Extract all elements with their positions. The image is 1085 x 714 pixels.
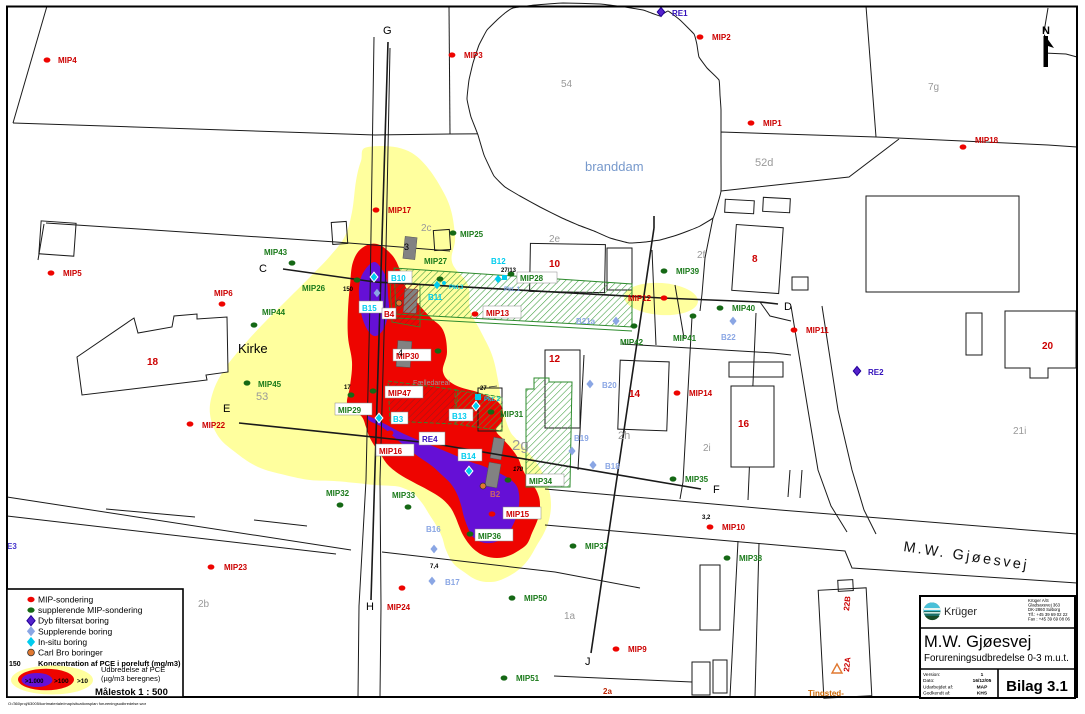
svg-text:MIP44: MIP44 (262, 308, 286, 317)
svg-text:Forureningsudbredelse 0-3 m.u.: Forureningsudbredelse 0-3 m.u.t. (924, 653, 1069, 664)
svg-text:20: 20 (1042, 341, 1054, 352)
svg-text:B20: B20 (602, 381, 617, 390)
svg-text:D: D (784, 301, 792, 313)
svg-text:MIP39: MIP39 (676, 267, 700, 276)
svg-text:MIP37: MIP37 (585, 542, 609, 551)
svg-text:12: 12 (549, 354, 561, 365)
svg-text:MIP14: MIP14 (689, 389, 713, 398)
svg-text:10: 10 (549, 259, 561, 270)
svg-text:F: F (713, 484, 720, 496)
svg-text:B16: B16 (426, 525, 441, 534)
svg-text:MIP3: MIP3 (464, 51, 483, 60)
svg-text:(µg/m3 beregnes): (µg/m3 beregnes) (101, 674, 161, 683)
svg-text:MIP38: MIP38 (739, 554, 763, 563)
svg-text:Udarbejdet af:: Udarbejdet af: (923, 684, 953, 690)
svg-text:16/12/05: 16/12/05 (973, 678, 992, 684)
svg-text:22B: 22B (842, 595, 853, 611)
svg-text:Godkendt af:: Godkendt af: (923, 691, 950, 697)
svg-text:MIP6: MIP6 (214, 289, 233, 298)
svg-text:MIP42: MIP42 (620, 338, 644, 347)
svg-text:branddam: branddam (585, 159, 644, 174)
svg-text:>100: >100 (54, 678, 69, 685)
svg-text:RE4: RE4 (422, 435, 438, 444)
svg-text:J: J (585, 656, 591, 668)
svg-text:Bilag 3.1: Bilag 3.1 (1006, 678, 1068, 695)
svg-text:MIP45: MIP45 (258, 380, 282, 389)
svg-text:MIP23: MIP23 (224, 563, 248, 572)
svg-text:Dyb filtersat boring: Dyb filtersat boring (38, 616, 109, 626)
svg-text:MIP26: MIP26 (302, 284, 326, 293)
svg-text:E: E (223, 403, 230, 415)
svg-text:2i: 2i (703, 443, 711, 454)
svg-text:53: 53 (256, 391, 268, 403)
svg-text:G: G (383, 25, 392, 37)
svg-text:B21a: B21a (576, 317, 596, 326)
svg-text:MIP25: MIP25 (460, 230, 484, 239)
svg-text:MIP28: MIP28 (520, 274, 544, 283)
svg-text:27/13: 27/13 (501, 268, 517, 274)
svg-text:Målestok 1 : 500: Målestok 1 : 500 (95, 687, 168, 698)
svg-text:2g: 2g (512, 437, 529, 454)
svg-text:MIP2: MIP2 (712, 33, 731, 42)
svg-text:MIP36: MIP36 (478, 532, 502, 541)
svg-text:In-situ boring: In-situ boring (38, 637, 87, 647)
svg-text:17: 17 (344, 385, 351, 391)
svg-text:MIP35: MIP35 (685, 475, 709, 484)
svg-text:MIP29: MIP29 (338, 406, 362, 415)
svg-text:Pkt 3: Pkt 3 (449, 285, 464, 291)
svg-text:Pkt. 1: Pkt. 1 (504, 287, 521, 293)
svg-text:2f: 2f (697, 250, 706, 261)
svg-text:MIP27: MIP27 (424, 257, 448, 266)
svg-text:3,2: 3,2 (702, 515, 711, 521)
svg-text:Dato:: Dato: (923, 678, 934, 684)
svg-text:14: 14 (629, 389, 641, 400)
svg-text:MIP47: MIP47 (388, 389, 412, 398)
svg-text:Fælledareal: Fælledareal (413, 380, 450, 387)
svg-text:MIP1: MIP1 (763, 119, 782, 128)
svg-text:Krüger: Krüger (944, 606, 977, 618)
svg-text:MIP43: MIP43 (264, 248, 288, 257)
svg-text:Fax : +45 39 69 08 06: Fax : +45 39 69 08 06 (1028, 616, 1071, 621)
svg-text:MIP16: MIP16 (379, 447, 403, 456)
svg-text:7g: 7g (928, 82, 939, 93)
svg-text:MAP: MAP (977, 684, 988, 690)
svg-text:MIP51: MIP51 (516, 674, 540, 683)
svg-text:E3: E3 (7, 542, 17, 551)
svg-text:MIP24: MIP24 (387, 603, 411, 612)
svg-text:B3: B3 (393, 415, 404, 424)
svg-text:150: 150 (343, 287, 354, 293)
svg-text:B14: B14 (461, 452, 476, 461)
svg-text:170: 170 (513, 467, 524, 473)
svg-text:2h: 2h (618, 430, 630, 442)
svg-text:MIP40: MIP40 (732, 304, 756, 313)
svg-text:8: 8 (752, 254, 758, 265)
svg-text:RE2: RE2 (868, 368, 884, 377)
svg-text:2b: 2b (198, 599, 210, 610)
svg-text:Supplerende boring: Supplerende boring (38, 626, 112, 636)
svg-text:C: C (259, 263, 267, 275)
svg-text:O:/360proj/63005/kortmateriale: O:/360proj/63005/kortmateriale/map/situa… (8, 701, 147, 706)
svg-text:MIP5: MIP5 (63, 269, 82, 278)
svg-text:MIP12: MIP12 (628, 294, 652, 303)
svg-text:MIP17: MIP17 (388, 206, 412, 215)
svg-text:B17: B17 (445, 578, 460, 587)
svg-text:Udbredelse af PCE: Udbredelse af PCE (101, 665, 165, 674)
svg-text:150: 150 (9, 661, 21, 668)
svg-text:2a: 2a (603, 687, 612, 696)
svg-text:N: N (1042, 25, 1050, 37)
svg-text:B12: B12 (491, 257, 506, 266)
svg-text:MIP50: MIP50 (524, 594, 548, 603)
svg-text:>1.000: >1.000 (25, 679, 44, 685)
svg-text:B13: B13 (452, 412, 467, 421)
svg-text:21i: 21i (1013, 426, 1026, 437)
svg-text:MIP11: MIP11 (806, 326, 829, 335)
svg-text:MIP41: MIP41 (673, 334, 697, 343)
svg-text:MIP34: MIP34 (529, 477, 553, 486)
svg-text:16: 16 (738, 419, 750, 430)
svg-text:4: 4 (398, 348, 403, 358)
svg-text:supplerende MIP-sondering: supplerende MIP-sondering (38, 605, 143, 615)
svg-text:1a: 1a (564, 611, 576, 622)
svg-text:RE1: RE1 (672, 9, 688, 18)
svg-text:18: 18 (147, 357, 159, 368)
svg-text:MIP13: MIP13 (486, 309, 510, 318)
svg-text:>10: >10 (77, 678, 88, 685)
svg-text:B11: B11 (428, 293, 443, 302)
svg-text:MIP33: MIP33 (392, 491, 416, 500)
svg-text:22A: 22A (842, 656, 853, 672)
svg-text:Carl Bro boringer: Carl Bro boringer (38, 648, 103, 658)
svg-text:7,4: 7,4 (430, 564, 439, 570)
svg-text:B2: B2 (490, 490, 501, 499)
svg-text:B19: B19 (574, 434, 589, 443)
svg-text:M.W. Gjøesvej: M.W. Gjøesvej (924, 633, 1031, 651)
svg-text:54: 54 (561, 79, 573, 90)
svg-text:MIP31: MIP31 (500, 410, 524, 419)
svg-text:B22: B22 (721, 333, 736, 342)
svg-text:27: 27 (480, 386, 487, 392)
svg-text:MIP15: MIP15 (506, 510, 530, 519)
svg-text:52d: 52d (755, 157, 773, 169)
svg-text:Kirke: Kirke (238, 341, 268, 356)
svg-text:MIP32: MIP32 (326, 489, 350, 498)
svg-text:2e: 2e (549, 234, 561, 245)
svg-text:B15: B15 (362, 304, 377, 313)
svg-text:MIP-sondering: MIP-sondering (38, 595, 94, 605)
svg-text:B18: B18 (605, 462, 620, 471)
svg-text:3: 3 (404, 242, 409, 252)
svg-text:B10: B10 (391, 274, 406, 283)
svg-text:H: H (366, 601, 374, 613)
svg-text:MIP22: MIP22 (202, 421, 226, 430)
svg-text:MIP10: MIP10 (722, 523, 746, 532)
svg-text:2c: 2c (421, 223, 432, 234)
svg-text:KHS: KHS (977, 691, 988, 697)
svg-text:1: 1 (981, 672, 984, 678)
svg-text:MIP4: MIP4 (58, 56, 77, 65)
svg-text:Version:: Version: (923, 672, 940, 678)
svg-text:Pkt. 2: Pkt. 2 (484, 397, 501, 403)
svg-text:B4: B4 (384, 310, 395, 319)
svg-text:MIP18: MIP18 (975, 136, 999, 145)
svg-text:MIP9: MIP9 (628, 645, 647, 654)
